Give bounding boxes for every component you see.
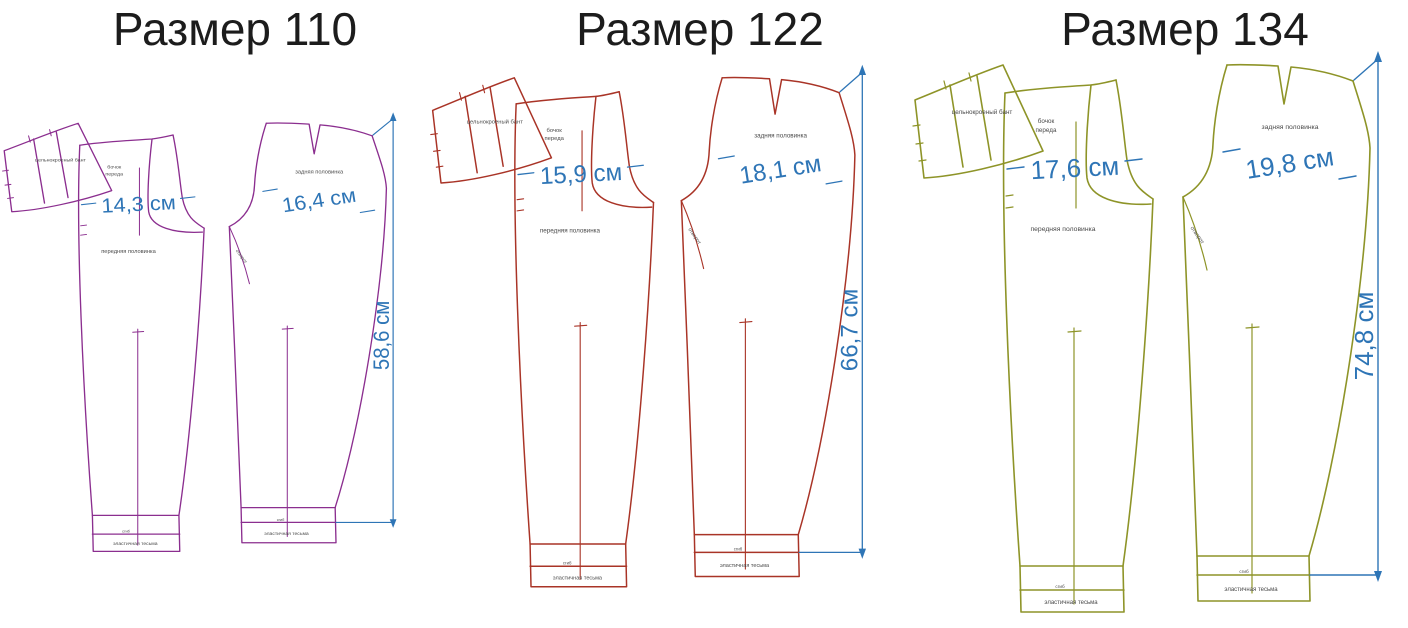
- side-length-measurement: 74,8 см: [1349, 292, 1379, 381]
- waistband-label: цельнокроеный бант: [467, 118, 524, 125]
- side-length-measurement: 66,7 см: [837, 289, 864, 371]
- fly-line-label: отворот: [686, 227, 702, 246]
- side-length-measurement: 58,6 см: [370, 301, 394, 370]
- trouser-outlines: [3, 123, 387, 551]
- front-side-label-line1: бочок: [1038, 117, 1055, 125]
- front-width-measurement: 15,9 см: [539, 159, 623, 190]
- pattern-drawing-size-134: цельнокроеный бант бочок переда передняя…: [910, 48, 1408, 623]
- hem-fold-label-back: сгиб: [277, 518, 285, 522]
- back-width-measurement: 18,1 см: [738, 150, 823, 190]
- back-width-measurement: 19,8 см: [1244, 141, 1336, 185]
- back-half-label: задняя половинка: [1261, 124, 1318, 131]
- front-side-label-line1: бочок: [107, 165, 122, 171]
- hem-fold-label-back: сгиб: [1239, 569, 1249, 574]
- front-width-measurement: 14,3 см: [101, 192, 177, 218]
- waistband-label: цельнокроеный бант: [952, 108, 1013, 116]
- fly-line-label: отворот: [235, 249, 249, 264]
- front-half-label: передняя половинка: [540, 227, 601, 234]
- back-half-label: задняя половинка: [754, 132, 807, 139]
- elastic-label-back: эластичная тесьма: [1224, 587, 1278, 593]
- pattern-drawing-size-110: цельнокроеный бант бочок переда передняя…: [0, 110, 420, 560]
- front-side-label-line2: переда: [105, 172, 123, 178]
- front-half-label: передняя половинка: [101, 249, 157, 255]
- back-width-measurement: 16,4 см: [280, 184, 357, 217]
- front-side-label-line2: переда: [1036, 127, 1057, 134]
- front-width-measurement: 17,6 см: [1030, 151, 1120, 186]
- hem-fold-label-front: сгиб: [122, 530, 130, 534]
- front-side-label-line1: бочок: [547, 128, 563, 134]
- hem-fold-label-front: сгиб: [1055, 584, 1065, 589]
- size-122-title: Размер 122: [550, 2, 850, 56]
- fly-line-label: отворот: [1189, 226, 1206, 246]
- front-half-label: передняя половинка: [1030, 226, 1095, 233]
- elastic-label-back: эластичная тесьма: [720, 563, 770, 569]
- hem-fold-label-front: сгиб: [563, 560, 572, 565]
- back-half-label: задняя половинка: [295, 170, 344, 176]
- elastic-label-front: эластичная тесьма: [113, 542, 158, 547]
- hem-fold-label-back: сгиб: [734, 546, 743, 551]
- size-110-title: Размер 110: [85, 2, 385, 56]
- elastic-label-back: эластичная тесьма: [264, 532, 309, 537]
- elastic-label-front: эластичная тесьма: [1044, 600, 1098, 606]
- pattern-sheet: Размер 110 Размер 122 Размер 134 цельнок…: [0, 0, 1408, 628]
- front-side-label-line2: переда: [544, 136, 564, 142]
- elastic-label-front: эластичная тесьма: [553, 575, 603, 581]
- pattern-drawing-size-122: цельнокроеный бант бочок переда передняя…: [428, 62, 892, 597]
- waistband-label: цельнокроеный бант: [35, 157, 87, 164]
